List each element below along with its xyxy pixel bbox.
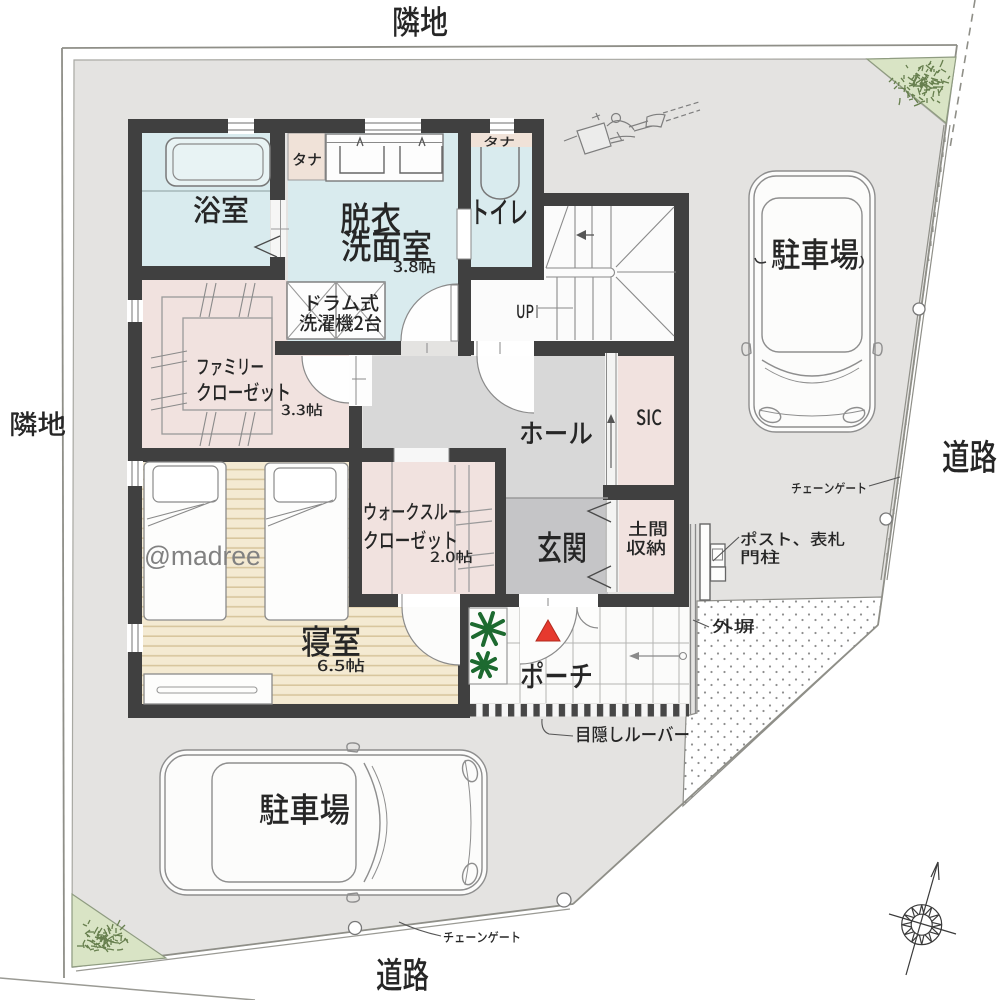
svg-text:@madree: @madree [144, 541, 261, 571]
